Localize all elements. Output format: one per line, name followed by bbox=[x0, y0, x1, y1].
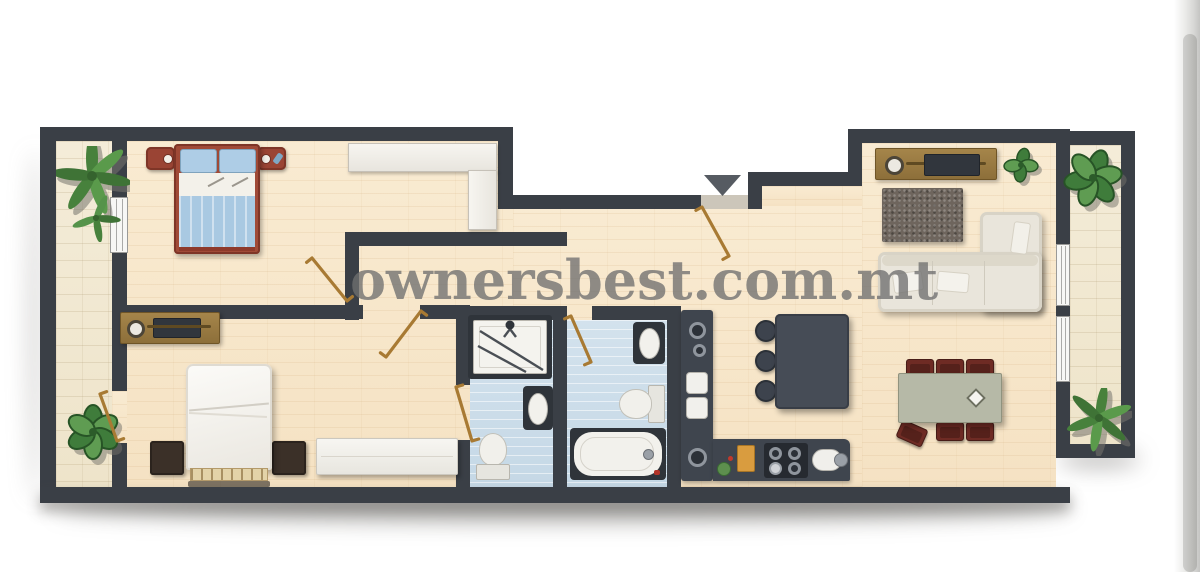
shower-head bbox=[506, 321, 515, 330]
door-swing-bedroom1 bbox=[307, 258, 353, 301]
scrollbar-track[interactable] bbox=[1174, 0, 1200, 572]
scrollbar-thumb[interactable] bbox=[1183, 34, 1197, 572]
door-swing-bathroom bbox=[565, 316, 591, 365]
shower-detail bbox=[478, 329, 543, 372]
door-swing-shower-room bbox=[456, 385, 479, 441]
floor-plan-page: ownersbest.com.mt bbox=[0, 0, 1200, 572]
entrance-arrow bbox=[704, 175, 741, 196]
watermark-text: ownersbest.com.mt bbox=[350, 248, 938, 312]
door-swing-balcony-bedroom2 bbox=[100, 392, 124, 441]
door-swing-bedroom2 bbox=[380, 311, 426, 357]
